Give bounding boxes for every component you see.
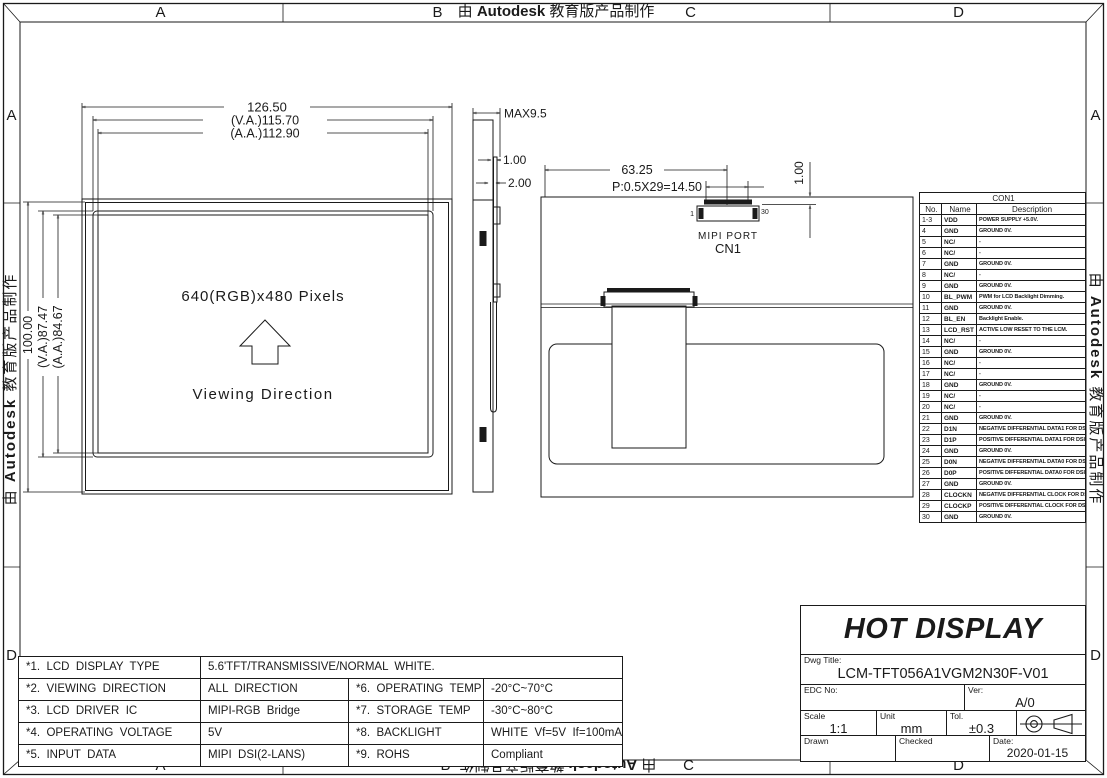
fpc-ribbon: [612, 306, 686, 448]
spec-value: ALL DIRECTION: [201, 679, 349, 701]
pin-description: GROUND 0V.: [977, 281, 1086, 292]
pin-description: GROUND 0V.: [977, 413, 1086, 424]
back-view: 1 30 MIPI PORT CN1 63.25 P:0.5X29=14.50 …: [541, 161, 913, 497]
pin-no: 27: [920, 479, 942, 490]
watermark-text: 由: [637, 756, 656, 773]
pin-name: CLOCKN: [942, 490, 977, 501]
watermark-brand: Autodesk: [2, 398, 19, 482]
spec-value: 5.6'TFT/TRANSMISSIVE/NORMAL WHITE.: [201, 657, 623, 679]
spec-label: *8. BACKLIGHT: [349, 723, 484, 745]
drawing-sheet: 126.50 (V.A.)115.70 (A.A.)112.90 100.00 …: [0, 0, 1107, 778]
pin-table-row: 25 D0N NEGATIVE DIFFERENTIAL DATA0 FOR D…: [920, 457, 1086, 468]
dim-va-height: (V.A.)87.47: [36, 306, 50, 368]
pin-name: GND: [942, 347, 977, 358]
pin-description: POWER SUPPLY +5.0V.: [977, 215, 1086, 226]
pin-name: GND: [942, 303, 977, 314]
pin-no: 15: [920, 347, 942, 358]
spec-label: *3. LCD DRIVER IC: [19, 701, 201, 723]
pin30-label: 30: [761, 209, 769, 216]
spec-value: Compliant: [484, 745, 623, 767]
pin-table-row: 24 GND GROUND 0V.: [920, 446, 1086, 457]
dim-aa-height: (A.A.)84.67: [51, 305, 65, 368]
watermark-text: 教育版产品制作: [1087, 380, 1104, 505]
checked-label: Checked: [899, 737, 933, 746]
pin-table-row: 8 NC/ -: [920, 270, 1086, 281]
spec-label: *1. LCD DISPLAY TYPE: [19, 657, 201, 679]
pin-table-row: 18 GND GROUND 0V.: [920, 380, 1086, 391]
spec-row: *5. INPUT DATA MIPI DSI(2-LANS) *9. ROHS…: [19, 745, 623, 767]
pin-table-row: 16 NC/ -: [920, 358, 1086, 369]
watermark-text: 教育版产品制作: [2, 273, 19, 398]
spec-label: *6. OPERATING TEMP: [349, 679, 484, 701]
pin-name: GND: [942, 512, 977, 523]
pin-name: GND: [942, 281, 977, 292]
pin-table-row: 10 BL_PWM PWM for LCD Backlight Dimming.: [920, 292, 1086, 303]
pin-description: GROUND 0V.: [977, 446, 1086, 457]
spec-value: WHITE Vf=5V If=100mA: [484, 723, 623, 745]
pin-no: 14: [920, 336, 942, 347]
pin-name: CLOCKP: [942, 501, 977, 512]
title-block: HOT DISPLAY Dwg Title: LCM-TFT056A1VGM2N…: [800, 605, 1086, 762]
pin-no: 23: [920, 435, 942, 446]
viewing-direction-arrow-icon: [240, 320, 290, 364]
pin-table-row: 17 NC/ -: [920, 369, 1086, 380]
pin-description: NEGATIVE DIFFERENTIAL DATA1 FOR DSI.: [977, 424, 1086, 435]
edc-no-label: EDC No:: [804, 686, 838, 695]
spec-label: *2. VIEWING DIRECTION: [19, 679, 201, 701]
dim-outline-width: 126.50: [247, 100, 287, 115]
pin-no: 19: [920, 391, 942, 402]
pin-no: 10: [920, 292, 942, 303]
watermark-text: 由: [1087, 273, 1104, 296]
pin-description: POSITIVE DIFFERENTIAL DATA0 FOR DSI.: [977, 468, 1086, 479]
pin-description: ACTIVE LOW RESET TO THE LCM.: [977, 325, 1086, 336]
pin-name: VDD: [942, 215, 977, 226]
pin-table-row: 29 CLOCKP POSITIVE DIFFERENTIAL CLOCK FO…: [920, 501, 1086, 512]
pin-description: -: [977, 237, 1086, 248]
spec-row: *3. LCD DRIVER IC MIPI-RGB Bridge *7. ST…: [19, 701, 623, 723]
pin-no: 11: [920, 303, 942, 314]
scale-label: Scale: [804, 712, 825, 721]
pin-table-row: 5 NC/ -: [920, 237, 1086, 248]
spec-label: *4. OPERATING VOLTAGE: [19, 723, 201, 745]
pin-table-row: 30 GND GROUND 0V.: [920, 512, 1086, 523]
company-logo: HOT DISPLAY: [801, 606, 1085, 654]
pin-table-title: CON1: [920, 193, 1086, 204]
pin-table: CON1 No. Name Description 1-3 VDD POWER …: [919, 192, 1085, 523]
pin-no: 26: [920, 468, 942, 479]
pin-description: -: [977, 402, 1086, 413]
spec-label: *9. ROHS: [349, 745, 484, 767]
frame-clip: [480, 427, 487, 442]
pin-description: PWM for LCD Backlight Dimming.: [977, 292, 1086, 303]
dim-top-glass: 1.00: [503, 153, 527, 167]
pin-table-row: 4 GND GROUND 0V.: [920, 226, 1086, 237]
pin-description: -: [977, 358, 1086, 369]
pin-no: 1-3: [920, 215, 942, 226]
zone-letter-left-a: A: [3, 107, 20, 124]
watermark-text: 由: [458, 3, 477, 20]
pin-table-row: 13 LCD_RST ACTIVE LOW RESET TO THE LCM.: [920, 325, 1086, 336]
spec-row: *2. VIEWING DIRECTION ALL DIRECTION *6. …: [19, 679, 623, 701]
watermark-text: 教育版产品制作: [545, 3, 654, 20]
pin-name: D0P: [942, 468, 977, 479]
viewing-direction-label: Viewing Direction: [192, 386, 333, 403]
pin-no: 13: [920, 325, 942, 336]
pin-name: NC/: [942, 237, 977, 248]
pin-no: 21: [920, 413, 942, 424]
pin-name: NC/: [942, 391, 977, 402]
pin-table-row: 28 CLOCKN NEGATIVE DIFFERENTIAL CLOCK FO…: [920, 490, 1086, 501]
pin-name: BL_PWM: [942, 292, 977, 303]
zone-letter-top-b: B: [429, 4, 446, 21]
zone-letter-top-d: D: [950, 4, 967, 21]
pin-name: GND: [942, 226, 977, 237]
pin-description: GROUND 0V.: [977, 347, 1086, 358]
pin-name: GND: [942, 413, 977, 424]
spec-label: *7. STORAGE TEMP: [349, 701, 484, 723]
zone-letter-top-a: A: [152, 4, 169, 21]
dwg-title-label: Dwg Title:: [804, 656, 841, 665]
dim-glass: 2.00: [508, 176, 532, 190]
pin-no: 18: [920, 380, 942, 391]
pin-no: 6: [920, 248, 942, 259]
pin-description: POSITIVE DIFFERENTIAL DATA1 FOR DSI.: [977, 435, 1086, 446]
pin-description: -: [977, 248, 1086, 259]
dim-pitch: P:0.5X29=14.50: [612, 180, 702, 194]
pin-no: 8: [920, 270, 942, 281]
zone-letter-top-c: C: [682, 4, 699, 21]
pin-no: 12: [920, 314, 942, 325]
pin-no: 22: [920, 424, 942, 435]
fpc-connector: [604, 292, 694, 307]
pin-table-row: 23 D1P POSITIVE DIFFERENTIAL DATA1 FOR D…: [920, 435, 1086, 446]
pin-description: GROUND 0V.: [977, 259, 1086, 270]
spec-value: -30°C~80°C: [484, 701, 623, 723]
pin-table-row: 15 GND GROUND 0V.: [920, 347, 1086, 358]
pin-no: 25: [920, 457, 942, 468]
pin-name: GND: [942, 479, 977, 490]
pin-name: D1P: [942, 435, 977, 446]
pin-name: GND: [942, 380, 977, 391]
pin-name: GND: [942, 446, 977, 457]
watermark-top: 由 Autodesk 教育版产品制作: [445, 4, 667, 20]
pin-name: NC/: [942, 358, 977, 369]
pin-description: GROUND 0V.: [977, 479, 1086, 490]
spec-table: *1. LCD DISPLAY TYPE 5.6'TFT/TRANSMISSIV…: [18, 656, 623, 767]
third-angle-projection-icon: [1018, 712, 1084, 735]
pin-description: -: [977, 270, 1086, 281]
version-label: Ver:: [968, 686, 983, 695]
side-view: MAX9.5 1.00 2.00: [473, 107, 547, 493]
pin-table-header-no: No.: [920, 204, 942, 215]
dim-va-width: (V.A.)115.70: [231, 114, 299, 128]
pin-table-row: 21 GND GROUND 0V.: [920, 413, 1086, 424]
zone-letter-bottom-c: C: [680, 757, 697, 774]
spec-value: 5V: [201, 723, 349, 745]
pin-name: NC/: [942, 336, 977, 347]
spec-row: *1. LCD DISPLAY TYPE 5.6'TFT/TRANSMISSIV…: [19, 657, 623, 679]
connector-name: CN1: [715, 241, 741, 256]
pin-name: NC/: [942, 369, 977, 380]
pin-table-row: 12 BL_EN Backlight Enable.: [920, 314, 1086, 325]
pin-no: 7: [920, 259, 942, 270]
dim-thickness: MAX9.5: [504, 107, 547, 121]
watermark-right: 由 Autodesk 教育版产品制作: [1087, 224, 1103, 554]
resolution-label: 640(RGB)x480 Pixels: [181, 288, 344, 305]
pin-description: NEGATIVE DIFFERENTIAL CLOCK FOR DSI.: [977, 490, 1086, 501]
pin-description: -: [977, 391, 1086, 402]
pin-name: BL_EN: [942, 314, 977, 325]
dim-offset: 1.00: [792, 161, 806, 185]
front-view: 126.50 (V.A.)115.70 (A.A.)112.90 100.00 …: [21, 100, 452, 495]
pin-table-row: 7 GND GROUND 0V.: [920, 259, 1086, 270]
drawn-label: Drawn: [804, 737, 829, 746]
tolerance-label: Tol.: [950, 712, 963, 721]
pin-no: 4: [920, 226, 942, 237]
pin-no: 30: [920, 512, 942, 523]
pin-description: GROUND 0V.: [977, 226, 1086, 237]
pin-no: 9: [920, 281, 942, 292]
zone-letter-right-a: A: [1087, 107, 1104, 124]
pin-name: NC/: [942, 270, 977, 281]
pin1-label: 1: [690, 211, 694, 218]
pin-no: 28: [920, 490, 942, 501]
spec-row: *4. OPERATING VOLTAGE 5V *8. BACKLIGHT W…: [19, 723, 623, 745]
pin-no: 20: [920, 402, 942, 413]
pin-no: 24: [920, 446, 942, 457]
pin-table-row: 9 GND GROUND 0V.: [920, 281, 1086, 292]
pin-description: -: [977, 336, 1086, 347]
pin-name: GND: [942, 259, 977, 270]
pin-name: NC/: [942, 248, 977, 259]
pin-table-row: 27 GND GROUND 0V.: [920, 479, 1086, 490]
pin-description: -: [977, 369, 1086, 380]
spec-label: *5. INPUT DATA: [19, 745, 201, 767]
pin-no: 16: [920, 358, 942, 369]
mipi-connector: [697, 206, 759, 221]
frame-clip: [480, 231, 487, 246]
spec-value: MIPI-RGB Bridge: [201, 701, 349, 723]
pin-table-row: 19 NC/ -: [920, 391, 1086, 402]
pin-description: GROUND 0V.: [977, 512, 1086, 523]
spec-value: -20°C~70°C: [484, 679, 623, 701]
pin-table-header-name: Name: [942, 204, 977, 215]
pin-description: GROUND 0V.: [977, 380, 1086, 391]
pin-description: Backlight Enable.: [977, 314, 1086, 325]
pin-no: 5: [920, 237, 942, 248]
pin-table-row: 1-3 VDD POWER SUPPLY +5.0V.: [920, 215, 1086, 226]
unit-label: Unit: [880, 712, 895, 721]
date-label: Date:: [993, 737, 1013, 746]
pin-no: 29: [920, 501, 942, 512]
pin-name: LCD_RST: [942, 325, 977, 336]
watermark-brand: Autodesk: [1087, 296, 1104, 380]
watermark-text: 由: [2, 482, 19, 505]
watermark-brand: Autodesk: [477, 3, 545, 20]
zone-letter-right-d: D: [1087, 647, 1104, 664]
pin-table-row: 11 GND GROUND 0V.: [920, 303, 1086, 314]
pin-description: NEGATIVE DIFFERENTIAL DATA0 FOR DSI.: [977, 457, 1086, 468]
pin-table-header-description: Description: [977, 204, 1086, 215]
pin-table-row: 20 NC/ -: [920, 402, 1086, 413]
spec-value: MIPI DSI(2-LANS): [201, 745, 349, 767]
pin-table-row: 22 D1N NEGATIVE DIFFERENTIAL DATA1 FOR D…: [920, 424, 1086, 435]
pin-table-row: 6 NC/ -: [920, 248, 1086, 259]
dim-connector-center: 63.25: [621, 163, 652, 177]
back-label-area: [549, 344, 884, 464]
pin-description: GROUND 0V.: [977, 303, 1086, 314]
pin-table-row: 26 D0P POSITIVE DIFFERENTIAL DATA0 FOR D…: [920, 468, 1086, 479]
pin-name: D1N: [942, 424, 977, 435]
dim-aa-width: (A.A.)112.90: [230, 127, 299, 141]
pin-description: POSITIVE DIFFERENTIAL CLOCK FOR DSI.: [977, 501, 1086, 512]
pin-name: NC/: [942, 402, 977, 413]
watermark-left: 由 Autodesk 教育版产品制作: [3, 224, 19, 554]
dim-outline-height: 100.00: [21, 316, 35, 354]
pin-table-row: 14 NC/ -: [920, 336, 1086, 347]
dwg-title: LCM-TFT056A1VGM2N30F-V01: [801, 655, 1085, 682]
pin-name: D0N: [942, 457, 977, 468]
pin-no: 17: [920, 369, 942, 380]
